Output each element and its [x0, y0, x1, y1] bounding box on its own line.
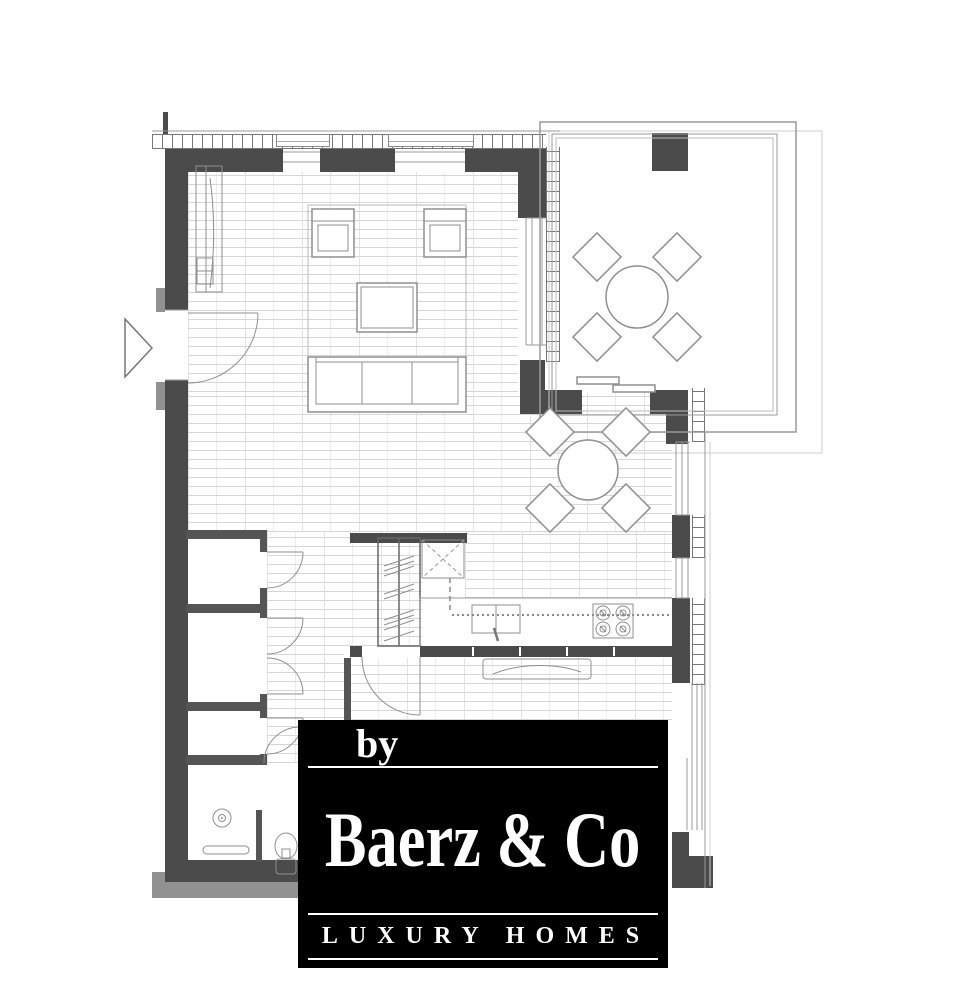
bathroom-bench — [203, 846, 249, 854]
upper-cabinet-dashed-line — [450, 578, 672, 615]
wardrobe-cabinet — [196, 166, 222, 292]
sliding-terrace-door — [577, 377, 655, 392]
cooktop — [593, 604, 633, 638]
shower-drain-icon — [213, 809, 231, 827]
armchair-right — [424, 209, 466, 257]
kitchen-sink — [472, 605, 520, 641]
dining-table-set — [526, 408, 650, 532]
watermark-logo: by Baerz & Co LUXURY HOMES — [298, 720, 668, 968]
window-glazing-top — [283, 152, 465, 162]
tall-kitchen-cabinets — [378, 538, 420, 646]
entry-door — [165, 310, 258, 383]
entry-direction-triangle-icon — [125, 319, 152, 377]
armchair-left — [312, 209, 354, 257]
terrace-table-set — [573, 233, 701, 361]
window-glazing-living-east — [526, 218, 546, 345]
terrace-outline — [540, 122, 822, 453]
watermark-rule-middle — [308, 913, 658, 915]
bedroom-door — [362, 657, 420, 715]
coffee-table — [357, 283, 417, 332]
watermark-tagline: LUXURY HOMES — [304, 923, 668, 950]
sofa — [308, 357, 466, 412]
toilet — [275, 833, 297, 874]
floor-plan-canvas: by Baerz & Co LUXURY HOMES — [0, 0, 970, 1000]
kitchen-counter — [420, 598, 672, 656]
sideboard — [483, 659, 591, 679]
watermark-prefix: by — [356, 722, 668, 766]
watermark-brand: Baerz & Co — [298, 768, 668, 913]
bathroom-door — [264, 727, 300, 763]
service-shaft — [422, 540, 464, 578]
